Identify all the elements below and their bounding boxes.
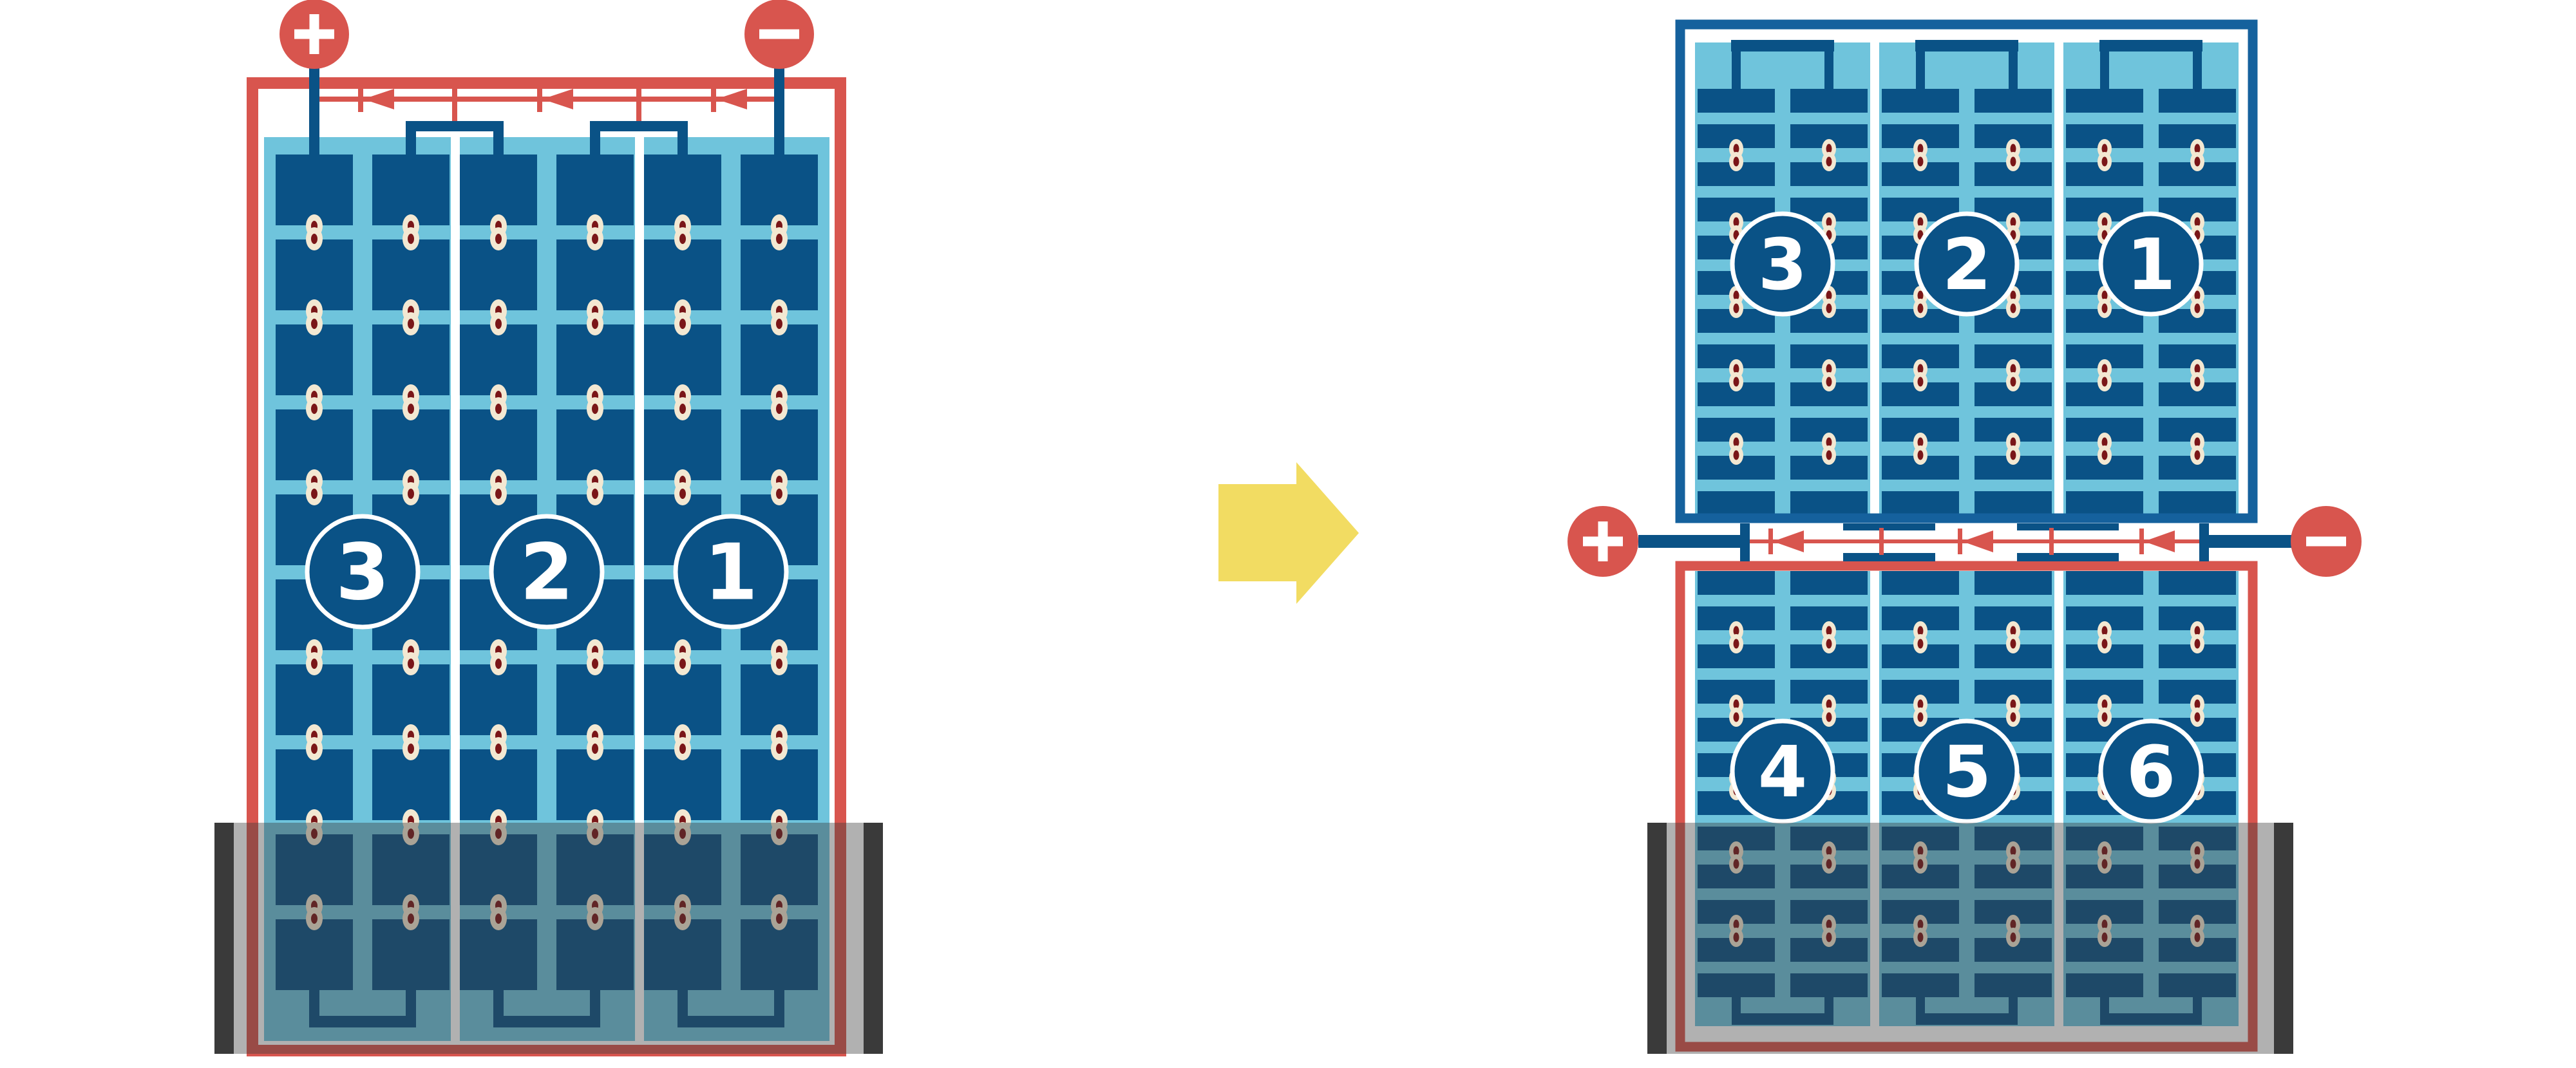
solder-pad-core — [1918, 639, 1924, 649]
shade-overlay — [1647, 823, 2293, 1054]
left-shade-overlay — [214, 823, 883, 1054]
solder-pad-core — [408, 659, 414, 669]
solar-cell — [1882, 571, 1959, 595]
module-output-rail — [1843, 523, 1935, 530]
transition-arrow-icon — [1218, 462, 1359, 604]
busbar-bridge — [590, 121, 688, 131]
solder-pad-core — [1734, 639, 1739, 649]
solar-cell — [2159, 491, 2236, 515]
diode-tap-wire — [2049, 528, 2054, 555]
diode-tap-wire — [636, 86, 641, 124]
busbar-bridge — [1731, 40, 1834, 52]
diagram-canvas: 321321456 — [0, 0, 2576, 1068]
solder-pad-core — [776, 489, 782, 499]
solder-pad-core — [408, 489, 414, 499]
diode-cathode-bar — [1958, 529, 1962, 554]
solder-pad-core — [776, 404, 782, 414]
busbar-leg — [1732, 52, 1741, 91]
solder-pad-core — [2102, 377, 2108, 387]
string-label-text: 5 — [1942, 731, 1992, 813]
solder-pad-core — [311, 319, 317, 329]
solder-pad-core — [679, 659, 686, 669]
solder-pad-core — [592, 489, 598, 499]
solder-pad-core — [2102, 639, 2108, 649]
solder-pad-core — [2102, 157, 2108, 167]
shade-end-bar — [864, 823, 883, 1054]
terminal-post — [1740, 523, 1750, 561]
solder-pad-core — [1734, 713, 1739, 722]
plus-icon — [1598, 521, 1608, 561]
solder-pad-core — [1826, 451, 1832, 460]
solder-pad-core — [1918, 157, 1924, 167]
terminal-post — [2199, 523, 2209, 561]
solar-cell — [1698, 491, 1775, 515]
right-top-module: 321 — [1680, 24, 2253, 518]
solder-pad-core — [2195, 639, 2201, 649]
string-label-text: 1 — [2126, 223, 2176, 306]
solar-cell — [1882, 491, 1959, 515]
solder-pad-core — [2195, 377, 2201, 387]
solder-pad-core — [2011, 451, 2016, 460]
positive-terminal — [279, 0, 349, 69]
diode-arrow — [542, 89, 573, 109]
string-label: 2 — [1917, 214, 2017, 314]
solder-pad-core — [495, 234, 502, 244]
bypass-diode-icon — [1768, 529, 1804, 554]
solar-cell — [1698, 89, 1775, 113]
bypass-diode-icon — [358, 86, 394, 112]
solder-pad-core — [592, 744, 598, 754]
minus-icon — [2306, 537, 2346, 547]
string-label-text: 4 — [1758, 731, 1808, 813]
solder-pad-core — [776, 234, 782, 244]
solder-pad-core — [2102, 713, 2108, 722]
solder-pad-core — [495, 659, 502, 669]
string-label-text: 3 — [1758, 223, 1808, 306]
bypass-diode-icon — [537, 86, 573, 112]
string-label-text: 2 — [520, 529, 574, 618]
solder-pad-core — [2011, 157, 2016, 167]
solder-pad-core — [1918, 713, 1924, 722]
string-separator — [1870, 42, 1879, 514]
solar-cell — [1790, 89, 1868, 113]
solder-pad-core — [1918, 377, 1924, 387]
string-label: 1 — [676, 516, 786, 627]
shared-junction-wiring — [1638, 523, 2291, 561]
solar-cell — [2066, 491, 2143, 515]
string-label: 2 — [491, 516, 602, 627]
busbar-bridge — [406, 121, 504, 131]
solder-pad-core — [776, 744, 782, 754]
solder-pad-core — [408, 404, 414, 414]
solar-cell — [2159, 89, 2236, 113]
solder-pad-core — [1918, 304, 1924, 314]
minus-icon — [759, 30, 799, 39]
shade-end-bar — [1647, 823, 1667, 1054]
string-label-text: 2 — [1942, 223, 1992, 306]
solder-pad-core — [2195, 713, 2201, 722]
solder-pad-core — [1826, 157, 1832, 167]
negative-terminal — [744, 0, 814, 69]
string-label-text: 6 — [2126, 731, 2176, 813]
negative-terminal — [2291, 506, 2362, 577]
shade-end-bar — [2274, 823, 2293, 1054]
solder-pad-core — [1734, 377, 1739, 387]
string-label: 4 — [1732, 721, 1833, 821]
diode-tap-wire — [1879, 528, 1884, 555]
busbar-leg — [677, 131, 688, 162]
solder-pad-core — [2195, 304, 2201, 314]
module-output-rail — [1843, 553, 1935, 561]
solder-pad-core — [2011, 304, 2016, 314]
solder-pad-core — [408, 319, 414, 329]
diode-arrow — [1773, 530, 1804, 552]
diode-cathode-bar — [358, 86, 363, 112]
solder-pad-core — [311, 489, 317, 499]
diode-arrow — [2144, 530, 2175, 552]
solder-pad-core — [311, 744, 317, 754]
diode-cathode-bar — [2139, 529, 2144, 554]
busbar-leg — [2100, 52, 2109, 91]
terminal-busbar — [2209, 535, 2291, 548]
solar-cell — [1882, 89, 1959, 113]
diode-cathode-bar — [537, 86, 542, 112]
solder-pad-core — [679, 404, 686, 414]
solder-pad-core — [592, 319, 598, 329]
string-label: 3 — [307, 516, 418, 627]
solar-cell — [1975, 491, 2052, 515]
solder-pad-core — [776, 319, 782, 329]
solder-pad-core — [1826, 377, 1832, 387]
solder-pad-core — [1826, 639, 1832, 649]
busbar-leg — [2193, 52, 2202, 91]
solder-pad-core — [592, 234, 598, 244]
solar-cell — [2066, 89, 2143, 113]
solder-pad-core — [1826, 304, 1832, 314]
solder-pad-core — [776, 659, 782, 669]
solder-pad-core — [311, 234, 317, 244]
string-label: 6 — [2101, 721, 2201, 821]
solar-module-wiring-diagram: 321321456 — [0, 0, 2576, 1068]
diode-arrow — [716, 89, 747, 109]
string-separator — [2054, 42, 2063, 514]
solder-pad-core — [2011, 713, 2016, 722]
diode-arrow — [363, 89, 394, 109]
solder-pad-core — [408, 744, 414, 754]
bypass-diode-icon — [2139, 529, 2175, 554]
string-label-text: 3 — [336, 529, 390, 618]
solar-cell — [2066, 571, 2143, 595]
solar-cell — [1975, 89, 2052, 113]
solder-pad-core — [2102, 451, 2108, 460]
busbar-leg — [493, 131, 504, 162]
solder-pad-core — [311, 404, 317, 414]
string-label-text: 1 — [704, 529, 758, 618]
solder-pad-core — [2011, 377, 2016, 387]
solder-pad-core — [2011, 639, 2016, 649]
solder-pad-core — [1918, 451, 1924, 460]
solder-pad-core — [495, 489, 502, 499]
diode-arrow — [1962, 530, 1993, 552]
solder-pad-core — [311, 659, 317, 669]
solar-cell — [1790, 491, 1868, 515]
module-output-rail — [2017, 553, 2119, 561]
busbar-bridge — [1915, 40, 2018, 52]
busbar-leg — [1824, 52, 1833, 91]
diode-cathode-bar — [1768, 529, 1773, 554]
solar-cell — [2159, 571, 2236, 595]
solder-pad-core — [592, 404, 598, 414]
shade-end-bar — [214, 823, 234, 1054]
solder-pad-core — [679, 489, 686, 499]
module-output-rail — [2017, 523, 2119, 530]
terminal-busbar — [1638, 535, 1740, 548]
solar-cell — [1975, 571, 2052, 595]
solder-pad-core — [495, 404, 502, 414]
string-label: 5 — [1917, 721, 2017, 821]
plus-icon — [310, 14, 319, 54]
solder-pad-core — [679, 744, 686, 754]
busbar-bridge — [2099, 40, 2202, 52]
shade-overlay — [214, 823, 883, 1054]
solder-pad-core — [679, 319, 686, 329]
solder-pad-core — [495, 319, 502, 329]
solar-cell — [1698, 571, 1775, 595]
solder-pad-core — [2102, 304, 2108, 314]
string-label: 1 — [2101, 214, 2201, 314]
solder-pad-core — [1734, 157, 1739, 167]
solder-pad-core — [495, 744, 502, 754]
string-label: 3 — [1732, 214, 1833, 314]
solder-pad-core — [2195, 157, 2201, 167]
busbar-leg — [406, 131, 416, 162]
bypass-diode-icon — [1958, 529, 1993, 554]
solder-pad-core — [592, 659, 598, 669]
diode-cathode-bar — [711, 86, 716, 112]
solder-pad-core — [408, 234, 414, 244]
bypass-diode-icon — [711, 86, 747, 112]
busbar-leg — [2009, 52, 2018, 91]
solder-pad-core — [1734, 304, 1739, 314]
right-shade-overlay — [1647, 823, 2293, 1054]
busbar-leg — [590, 131, 600, 162]
diode-tap-wire — [452, 86, 457, 124]
solder-pad-core — [1734, 451, 1739, 460]
solar-cell — [1790, 571, 1868, 595]
solder-pad-core — [2195, 451, 2201, 460]
busbar-leg — [1916, 52, 1925, 91]
positive-terminal — [1567, 506, 1638, 577]
solder-pad-core — [1826, 713, 1832, 722]
solder-pad-core — [679, 234, 686, 244]
